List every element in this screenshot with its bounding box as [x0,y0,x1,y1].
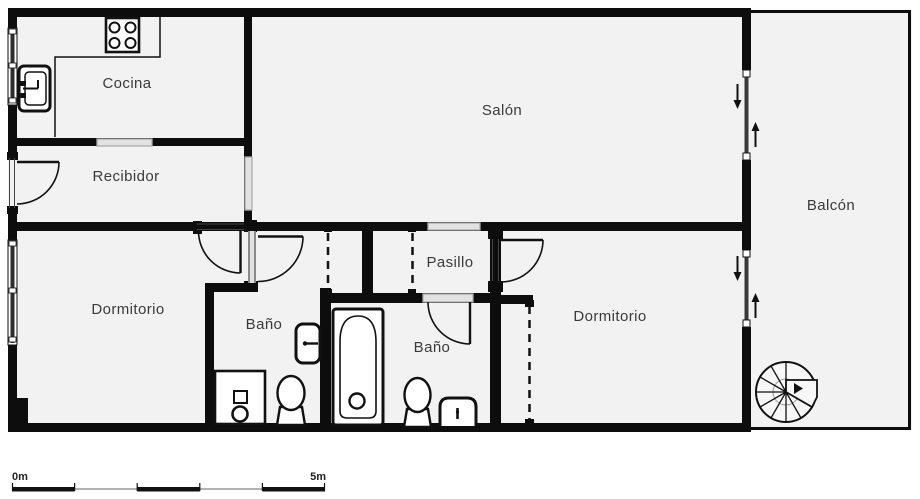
kitchen-sink-icon [19,66,50,111]
floor-plan-canvas: Cocina Recibidor Salón Balcón Dormitorio… [0,0,920,499]
shower-tray-icon [215,371,265,425]
toilet-icon [277,376,305,425]
room-label-recibidor: Recibidor [93,168,160,185]
scale-start-label: 0m [12,471,28,483]
bathtub-icon [333,309,383,425]
spiral-staircase-icon [756,362,817,422]
room-label-dormitorio2: Dormitorio [573,308,646,325]
scale-end-label: 5m [310,471,326,483]
kitchen-window-icon [8,28,17,105]
room-label-pasillo: Pasillo [427,254,474,271]
bedroom-window-icon [8,240,17,345]
room-label-balcon: Balcón [807,197,855,214]
room-label-bano1: Baño [246,316,283,333]
floor-plan-image: Cocina Recibidor Salón Balcón Dormitorio… [0,0,920,499]
scale-bar: 0m 5m [12,471,326,492]
room-label-bano2: Baño [414,339,451,356]
stove-icon [106,18,139,52]
pedestal-basin-icon [440,398,476,426]
room-label-salon: Salón [482,102,522,119]
room-label-cocina: Cocina [102,75,151,92]
toilet-icon [404,378,431,427]
wall-basin-icon [296,324,320,363]
room-label-dormitorio1: Dormitorio [91,301,164,318]
